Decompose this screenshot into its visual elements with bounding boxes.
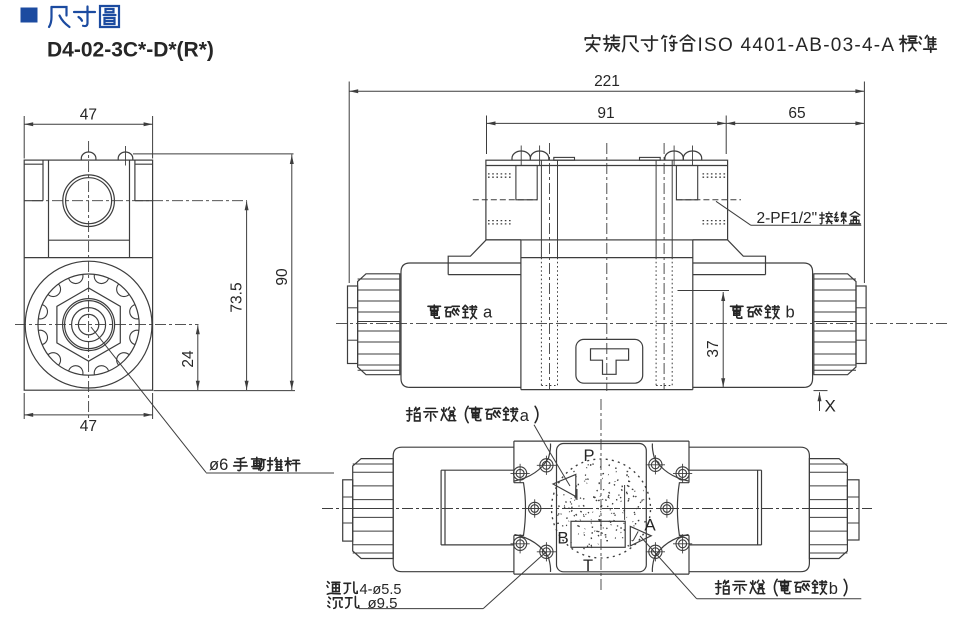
svg-text:b: b	[829, 580, 838, 598]
svg-text:D4-02-3C*-D*(R*): D4-02-3C*-D*(R*)	[47, 39, 214, 62]
svg-text:X: X	[825, 397, 836, 416]
svg-text:P: P	[583, 447, 594, 465]
svg-text:A: A	[644, 516, 656, 535]
svg-text:24: 24	[180, 350, 197, 368]
svg-text:37: 37	[705, 340, 722, 357]
svg-text:91: 91	[597, 105, 614, 122]
svg-text:90: 90	[274, 268, 291, 286]
svg-text:221: 221	[594, 73, 620, 90]
svg-text:a: a	[520, 407, 530, 425]
svg-text:T: T	[583, 557, 593, 575]
svg-text:B: B	[557, 529, 568, 548]
svg-text:47: 47	[80, 107, 97, 124]
svg-text:ISO 4401-AB-03-4-A: ISO 4401-AB-03-4-A	[698, 35, 896, 56]
svg-text:73.5: 73.5	[229, 282, 246, 312]
svg-text:47: 47	[80, 418, 97, 435]
svg-text:a: a	[483, 304, 493, 322]
svg-text:b: b	[786, 304, 795, 322]
svg-text:65: 65	[788, 105, 805, 122]
svg-text:ø9.5: ø9.5	[368, 595, 398, 612]
svg-text:ø6: ø6	[209, 456, 228, 474]
svg-text:2-PF1/2": 2-PF1/2"	[757, 210, 818, 227]
